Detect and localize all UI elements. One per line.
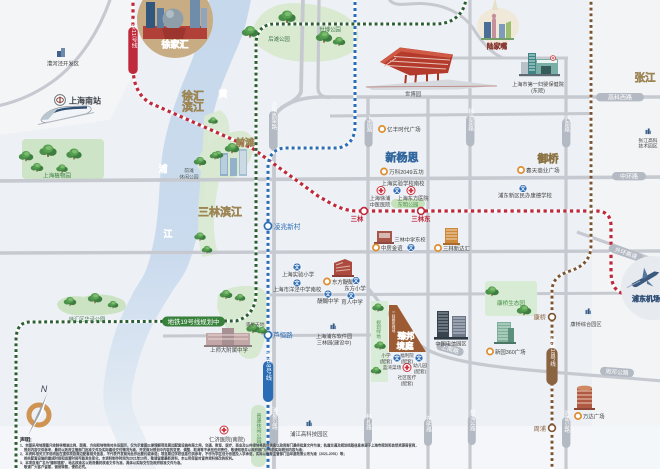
svg-text:福利院: 福利院 — [400, 352, 414, 359]
svg-text:芦恒路: 芦恒路 — [273, 331, 293, 340]
svg-text:声明:: 声明: — [19, 437, 32, 444]
svg-text:中医医院: 中医医院 — [370, 201, 392, 209]
svg-text:(配套): (配套) — [401, 380, 414, 387]
svg-text:规划内容仅供参考，最终以政府主管部门批准文件及实际建设交付情: 规划内容仅供参考，最终以政府主管部门批准文件及实际建设交付情况为准，开发商对规划… — [24, 447, 305, 452]
svg-text:醍醐中学: 醍醐中学 — [317, 297, 339, 305]
svg-text:沪南公路: 沪南公路 — [563, 409, 570, 434]
svg-text:林礼路: 林礼路 — [365, 413, 372, 432]
svg-text:三林东: 三林东 — [411, 214, 431, 223]
svg-text:(配套): (配套) — [414, 368, 427, 375]
svg-text:地铁19号线规划中: 地铁19号线规划中 — [168, 317, 220, 326]
svg-text:上海东方医院: 上海东方医院 — [397, 194, 429, 202]
svg-text:康桥: 康桥 — [534, 314, 546, 322]
svg-text:康桥生态园: 康桥生态园 — [497, 299, 525, 307]
svg-text:康桥综合园区: 康桥综合园区 — [570, 320, 601, 328]
svg-text:仁济医院(南院): 仁济医院(南院) — [209, 436, 245, 444]
svg-text:三林: 三林 — [351, 214, 364, 223]
svg-text:济阳高架路: 济阳高架路 — [270, 100, 277, 130]
svg-text:陆家嘴: 陆家嘴 — [487, 42, 508, 51]
svg-text:新园360广场: 新园360广场 — [495, 348, 526, 356]
svg-text:N: N — [41, 384, 48, 394]
svg-text:上海市洋泾中学南校: 上海市洋泾中学南校 — [273, 286, 322, 294]
svg-text:万达广场: 万达广场 — [583, 413, 605, 421]
svg-text:新杨思: 新杨思 — [386, 150, 419, 164]
svg-text:春天商业广场: 春天商业广场 — [526, 167, 560, 175]
svg-text:浦江高科技园区: 浦江高科技园区 — [290, 430, 328, 438]
svg-text:沪南路: 沪南路 — [563, 115, 570, 134]
svg-text:张江: 张江 — [635, 71, 656, 84]
svg-text:亿丰时代广场: 亿丰时代广场 — [387, 126, 421, 134]
svg-text:东明路: 东明路 — [425, 415, 432, 434]
svg-text:高科西路: 高科西路 — [608, 93, 632, 101]
svg-text:杨高南路: 杨高南路 — [467, 108, 474, 133]
svg-text:普康休闲公园: 普康休闲公园 — [256, 412, 262, 444]
svg-text:地铁11号线: 地铁11号线 — [130, 17, 137, 48]
svg-text:徐汇区华泾公园: 徐汇区华泾公园 — [69, 315, 105, 323]
svg-text:浦星公路: 浦星公路 — [271, 406, 278, 431]
svg-text:万科2049五坊: 万科2049五坊 — [389, 168, 424, 176]
svg-text:周浦: 周浦 — [534, 425, 546, 433]
svg-text:上海南站: 上海南站 — [69, 96, 101, 106]
svg-text:规划绿地: 规划绿地 — [376, 319, 382, 339]
svg-text:上海市第一妇婴保健院: 上海市第一妇婴保健院 — [512, 80, 565, 88]
svg-text:前滩: 前滩 — [184, 167, 194, 174]
svg-text:漕河泾开发区: 漕河泾开发区 — [47, 60, 80, 68]
svg-text:三林楔形绿地: 三林楔形绿地 — [391, 311, 396, 333]
svg-text:中国电信园区: 中国电信园区 — [435, 340, 466, 348]
svg-text:张江高科: 张江高科 — [638, 137, 657, 144]
svg-text:上海徐浦: 上海徐浦 — [370, 194, 391, 202]
svg-text:徐汇: 徐汇 — [181, 89, 204, 103]
svg-text:黄: 黄 — [218, 88, 227, 99]
svg-text:3、本项目推广名为"臻邦境庭"，地名核准名以政府最终核准文件: 3、本项目推广名为"臻邦境庭"，地名核准名以政府最终核准文件为准，具体以实际交付… — [20, 460, 184, 465]
svg-text:林海公路: 林海公路 — [469, 408, 476, 432]
svg-text:东明公园: 东明公园 — [398, 201, 419, 209]
svg-text:休闲公园: 休闲公园 — [179, 174, 198, 181]
svg-text:育人中学: 育人中学 — [341, 298, 363, 306]
svg-text:境庭: 境庭 — [396, 341, 414, 351]
svg-text:相关配套设施的建成时间和运营时间可能发生变化，本资料制作时间: 相关配套设施的建成时间和运营时间可能发生变化，本资料制作时间为2021年10月，… — [24, 456, 235, 461]
svg-text:江: 江 — [163, 228, 172, 239]
svg-text:浦星天地: 浦星天地 — [245, 321, 264, 328]
svg-text:浦东机场: 浦东机场 — [632, 294, 660, 303]
svg-text:上海浦东软件园: 上海浦东软件园 — [316, 332, 352, 340]
svg-text:上海实验学校南校: 上海实验学校南校 — [381, 180, 425, 188]
svg-text:2、本资料相关文字说明旨在提供项目周边配套相关信息，不代表开: 2、本资料相关文字说明旨在提供项目周边配套相关信息，不代表开发商对此作出要约或承… — [20, 451, 347, 456]
svg-text:1、本图采用地理量尺绘制非精准比例、距离、方向和地物绝对关系: 1、本图采用地理量尺绘制非精准比例、距离、方向和地物绝对关系图示，仅为示意图以便… — [20, 443, 419, 448]
svg-text:御桥: 御桥 — [537, 152, 559, 165]
svg-text:敬请广大客户留意，谢绝转载，侵权必究。: 敬请广大客户留意，谢绝转载，侵权必究。 — [24, 464, 88, 469]
svg-text:地铁8号线: 地铁8号线 — [265, 351, 272, 381]
svg-text:小学: 小学 — [381, 352, 391, 359]
svg-text:臻邦: 臻邦 — [397, 331, 415, 341]
svg-text:三林新达汇: 三林新达汇 — [443, 245, 471, 253]
svg-text:后滩公园: 后滩公园 — [268, 35, 290, 43]
svg-text:(东院): (东院) — [531, 87, 545, 95]
svg-text:上海植物园: 上海植物园 — [43, 172, 71, 180]
svg-text:世博公园: 世博公园 — [319, 26, 341, 34]
svg-text:东方小学: 东方小学 — [344, 285, 366, 293]
svg-text:三林中学东校: 三林中学东校 — [394, 236, 425, 244]
svg-text:技术园区: 技术园区 — [638, 143, 657, 150]
svg-text:世博园: 世博园 — [405, 90, 421, 98]
svg-text:幼儿园: 幼儿园 — [413, 362, 427, 369]
svg-text:三林滨江: 三林滨江 — [198, 205, 242, 219]
svg-text:蓝湾菜场: 蓝湾菜场 — [383, 364, 402, 371]
svg-text:中环路: 中环路 — [620, 172, 638, 180]
svg-text:上师大附属中学: 上师大附属中学 — [210, 346, 248, 354]
svg-text:地铁18号线: 地铁18号线 — [549, 336, 556, 367]
svg-text:(配套): (配套) — [380, 358, 393, 365]
svg-text:滨江: 滨江 — [182, 100, 204, 114]
svg-text:浦东新区民办康德学校: 浦东新区民办康德学校 — [498, 192, 553, 200]
svg-text:社区医疗: 社区医疗 — [398, 374, 417, 381]
svg-text:上海实验小学: 上海实验小学 — [282, 271, 315, 279]
svg-text:浦: 浦 — [158, 163, 167, 174]
svg-text:三林园(建设中): 三林园(建设中) — [317, 339, 352, 347]
svg-text:上南路: 上南路 — [366, 115, 373, 134]
svg-text:中房金谊: 中房金谊 — [381, 244, 403, 252]
svg-text:徐家汇: 徐家汇 — [160, 39, 188, 50]
svg-text:凌兆新村: 凌兆新村 — [274, 222, 301, 231]
